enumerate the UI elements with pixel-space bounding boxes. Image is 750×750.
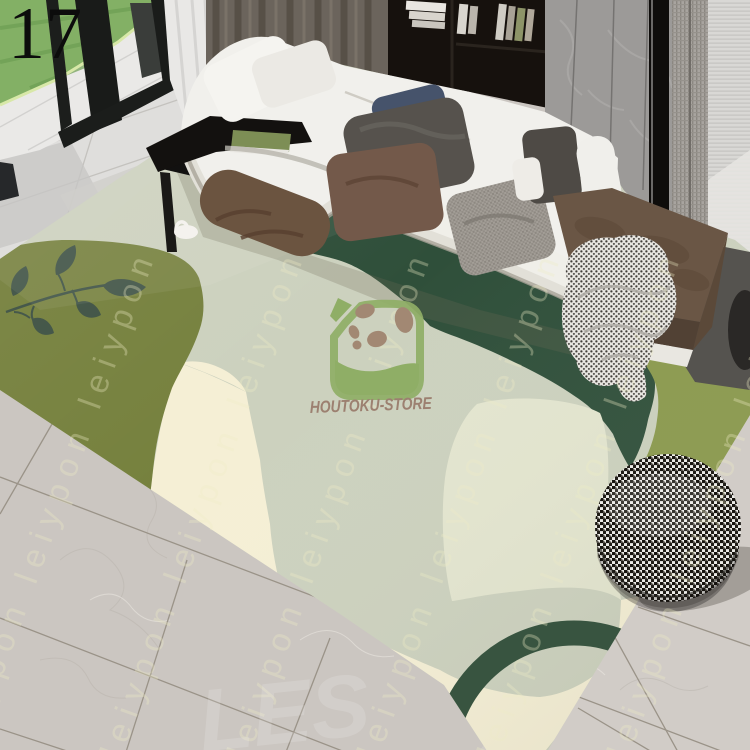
svg-text:LES: LES — [194, 654, 375, 750]
svg-text:17: 17 — [8, 0, 82, 75]
